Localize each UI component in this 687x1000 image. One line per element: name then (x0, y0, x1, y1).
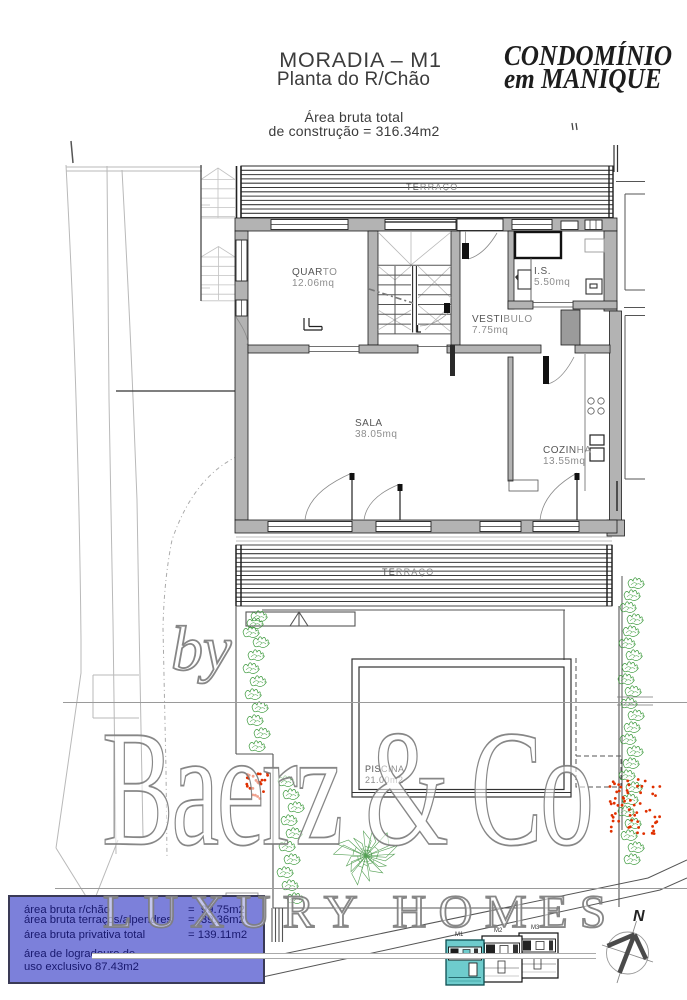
svg-text:N: N (633, 908, 645, 925)
